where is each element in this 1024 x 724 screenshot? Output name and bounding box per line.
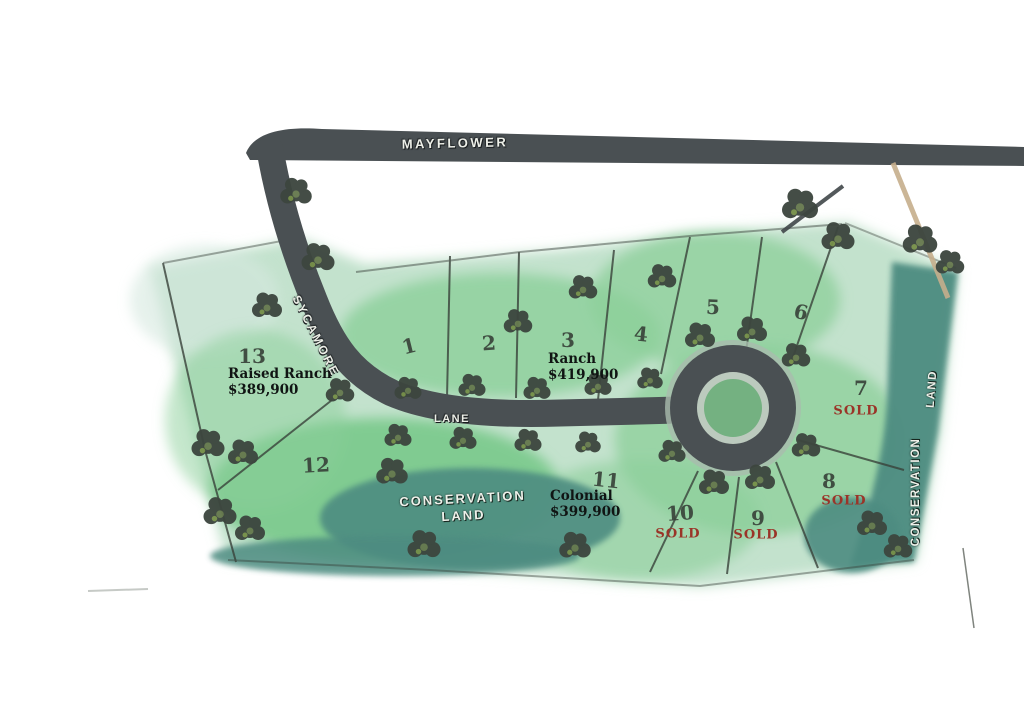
lot-13-price: $389,900 [228,382,332,398]
conservation-land-label-center: CONSERVATION LAND [399,487,527,528]
lot-3-house-type: Ranch [548,351,618,367]
lot-3-price: $419,900 [548,367,618,383]
lot-2-number: 2 [481,331,497,356]
conservation-label-right: CONSERVATION [910,438,922,547]
lot-1-number: 1 [399,333,418,360]
plot-map-page: MAYFLOWER SYCAMORE LANE CONSERVATION LAN… [0,0,1024,724]
lot-8-number: 8 [822,469,836,493]
lot-9-sold-badge: SOLD [733,528,778,543]
lot-5-number: 5 [706,295,721,319]
land-label-right: LAND [925,370,940,409]
lot-11-price: $399,900 [550,504,620,520]
lot-12-number: 12 [301,452,330,477]
lot-7-number: 7 [854,376,868,400]
lot-7-sold-badge: SOLD [833,404,878,419]
map-labels: MAYFLOWER SYCAMORE LANE CONSERVATION LAN… [0,0,1024,724]
lot-3-info: Ranch$419,900 [548,351,618,383]
lot-6-number: 6 [792,299,811,325]
lot-11-info: Colonial$399,900 [550,488,620,520]
lane-road-label: LANE [434,413,470,425]
lot-4-number: 4 [633,321,649,346]
mayflower-road-label: MAYFLOWER [402,134,509,151]
lot-8-sold-badge: SOLD [821,494,866,509]
lot-10-number: 10 [665,500,694,526]
lot-10-sold-badge: SOLD [655,527,700,542]
lot-11-house-type: Colonial [550,488,620,504]
lot-13-number: 13 [238,344,266,368]
lot-9-number: 9 [751,506,765,530]
lot-13-house-type: Raised Ranch [228,366,332,382]
lot-3-number: 3 [561,328,575,352]
lot-13-info: Raised Ranch$389,900 [228,366,332,398]
